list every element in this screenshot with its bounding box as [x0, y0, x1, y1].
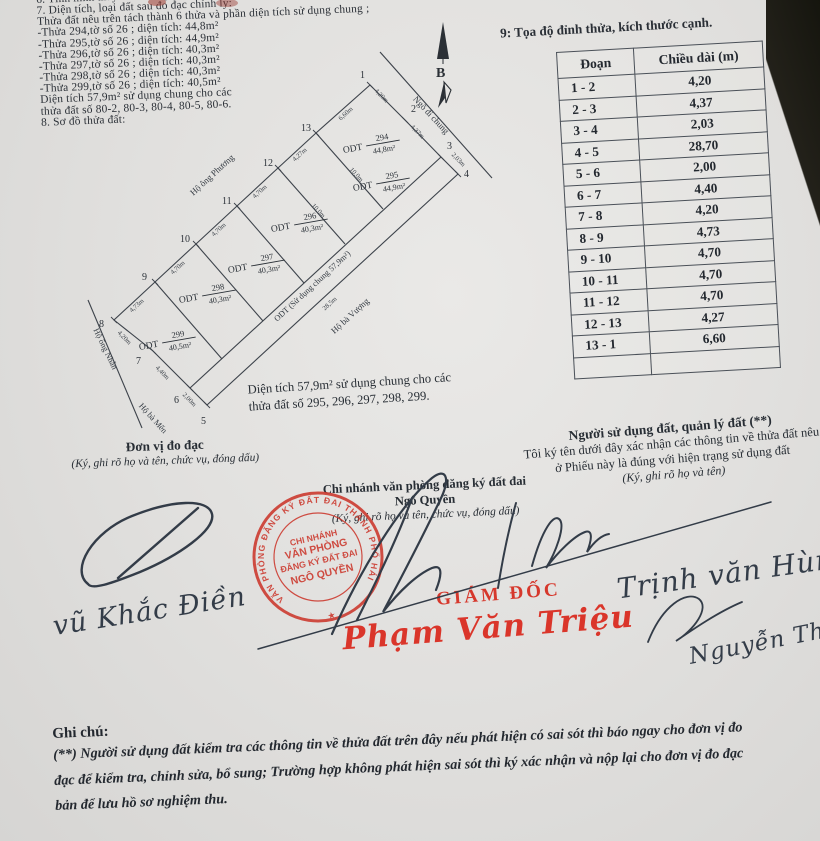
- svg-text:11: 11: [222, 196, 232, 207]
- svg-text:4,70m: 4,70m: [210, 221, 228, 238]
- svg-text:4,20m: 4,20m: [116, 330, 133, 347]
- svg-text:8: 8: [99, 319, 104, 330]
- photo-corner-shadow: [766, 0, 820, 240]
- svg-text:4,37m: 4,37m: [409, 124, 426, 141]
- stamp-star: ★: [326, 610, 336, 622]
- svg-text:ODT: ODT: [342, 143, 363, 156]
- parcel-labels: ODT 294 44,8m² ODT 295 44,9m² ODT 296 40…: [137, 129, 411, 358]
- diagram-note: Diện tích 57,9m² sử dụng chung cho các t…: [247, 366, 499, 415]
- stamp-center-line1: CHI NHÁNH: [289, 527, 338, 548]
- svg-text:ODT: ODT: [227, 263, 248, 276]
- parcel-label-298: ODT 298 40,3m²: [177, 279, 237, 311]
- parcel-divider: [316, 133, 383, 209]
- label-ho-ong-nhan: Hộ ông Nhẫn: [91, 327, 119, 372]
- svg-text:28,5m: 28,5m: [321, 295, 339, 312]
- stamp-center-line2: VĂN PHÒNG: [284, 535, 349, 562]
- parcel-label-299: ODT 299 40,5m²: [137, 326, 197, 358]
- svg-text:40,5m²: 40,5m²: [168, 340, 192, 353]
- label-ho-ba-men: Hộ bà Mến: [137, 401, 169, 435]
- handwritten-name-landuser2: Nguyễn Thị: [687, 616, 820, 669]
- parcel-divider: [196, 244, 263, 321]
- svg-text:10,0m: 10,0m: [348, 166, 365, 184]
- signature-left-loop: [82, 503, 213, 586]
- svg-text:ODT: ODT: [178, 293, 199, 306]
- label-strip-odt: ODT (Sử dụng chung 57,9m²): [272, 249, 352, 323]
- svg-text:40,3m²: 40,3m²: [257, 263, 281, 276]
- parcel-divider: [237, 206, 304, 283]
- label-ho-ba-vuong: Hộ bà Vượng: [329, 296, 371, 336]
- svg-text:294: 294: [375, 131, 390, 143]
- footnote-block: Ghi chú: (**) Người sử dụng đất kiểm tra…: [52, 695, 817, 819]
- svg-text:44,8m²: 44,8m²: [372, 143, 396, 156]
- parcel-label-294: ODT 294 44,8m²: [341, 129, 401, 161]
- svg-text:296: 296: [303, 210, 317, 222]
- landuser-signature-header: Người sử dụng đất, quản lý đất (**) Tôi …: [520, 408, 820, 493]
- svg-text:4,40m: 4,40m: [154, 365, 171, 382]
- svg-text:297: 297: [260, 251, 274, 263]
- parcel-divider: [278, 168, 345, 244]
- svg-text:40,3m²: 40,3m²: [300, 222, 324, 235]
- registry-signature-header: Chi nhánh văn phòng đăng ký đất đai Ngô …: [299, 473, 551, 527]
- svg-text:4: 4: [464, 169, 469, 180]
- parcel-label-296: ODT 296 40,3m²: [269, 208, 329, 240]
- svg-text:2,03m: 2,03m: [450, 152, 467, 169]
- director-name: Phạm Văn Triệu: [341, 599, 635, 658]
- svg-text:6: 6: [174, 395, 179, 406]
- svg-text:40,3m²: 40,3m²: [208, 293, 232, 306]
- svg-text:ODT: ODT: [352, 181, 373, 194]
- parcel-divider: [155, 282, 222, 359]
- vertex-ticks: [111, 82, 461, 408]
- parcel-label-297: ODT 297 40,3m²: [226, 249, 286, 281]
- svg-text:4,70m: 4,70m: [251, 183, 269, 200]
- section-7-block: 6. Tình hình thay đổi ranh giới thửa 7. …: [36, 0, 461, 129]
- svg-text:4,70m: 4,70m: [169, 259, 187, 276]
- handwritten-name-surveyor: vũ Khắc Điền: [51, 581, 248, 642]
- parcel-label-295: ODT 295 44,9m²: [351, 167, 411, 199]
- stamp-center-line4: NGÔ QUYỀN: [289, 560, 354, 587]
- svg-text:9: 9: [142, 272, 147, 283]
- segment-length-table: Đoạn Chiều dài (m) 1 - 24,20 2 - 34,37 3…: [556, 40, 781, 379]
- stamp-center-line3: ĐĂNG KÝ ĐẤT ĐAI: [279, 546, 358, 574]
- svg-text:44,9m²: 44,9m²: [382, 181, 406, 194]
- svg-text:2,00m: 2,00m: [181, 392, 198, 409]
- svg-text:5: 5: [201, 416, 206, 427]
- svg-text:10: 10: [180, 234, 190, 245]
- section-9-title: 9: Tọa độ đỉnh thửa, kích thước cạnh.: [500, 14, 713, 41]
- svg-text:7: 7: [136, 356, 141, 367]
- svg-text:4,27m: 4,27m: [291, 146, 309, 163]
- svg-text:295: 295: [385, 169, 399, 181]
- label-ho-ong-phuong: Hộ ông Phương: [188, 152, 236, 198]
- svg-text:298: 298: [211, 281, 225, 293]
- svg-text:4,73m: 4,73m: [128, 297, 146, 314]
- svg-text:ODT: ODT: [270, 222, 291, 235]
- handwritten-name-landuser1: Trịnh văn Hùng: [615, 540, 820, 606]
- svg-text:12: 12: [263, 158, 273, 169]
- svg-text:3: 3: [447, 141, 452, 152]
- surveyor-signature-header: Đơn vị đo đạc (Ký, ghi rõ họ và tên, chứ…: [40, 434, 291, 472]
- neighbor-boundary-line: [88, 300, 142, 428]
- scanned-cadastral-document: 6. Tình hình thay đổi ranh giới thửa 7. …: [0, 0, 820, 841]
- svg-text:299: 299: [171, 328, 185, 340]
- plot-boundary: [114, 85, 458, 405]
- svg-text:ODT: ODT: [138, 340, 159, 353]
- svg-text:10,0m: 10,0m: [310, 202, 327, 220]
- strip-upper-edge: [190, 157, 441, 388]
- edge-dimension-labels: 4,20m 4,37m 2,03m 6,60m 4,27m 4,70m 4,70…: [116, 88, 467, 409]
- svg-text:13: 13: [301, 123, 311, 134]
